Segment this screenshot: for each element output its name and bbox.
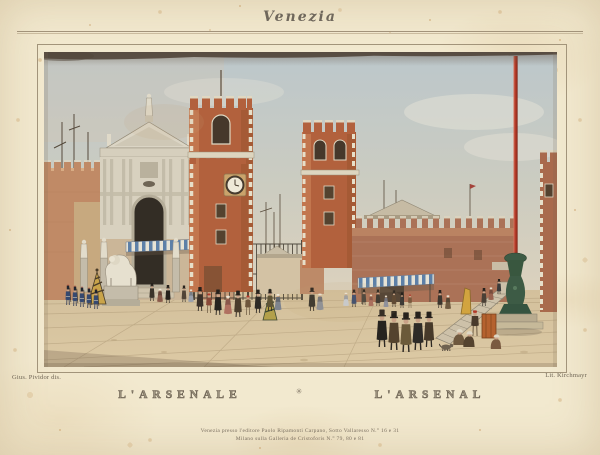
publisher-imprint: Venezia presso l'editore Paolo Ripamonti…: [0, 427, 600, 443]
flagpole: [514, 56, 518, 258]
title-rule: [17, 31, 583, 32]
belfry-window: [212, 115, 230, 144]
title-rule-shadow: [17, 33, 583, 34]
left-tower: [188, 70, 254, 292]
lithographer-credit: Lit. Kirchmayr: [545, 372, 587, 379]
divider-ornament: ✳: [284, 387, 314, 396]
winged-lion-relief: [143, 181, 155, 187]
lithograph-print: [44, 52, 557, 367]
series-title: Venezia: [0, 9, 600, 25]
crate: [482, 314, 496, 338]
publisher-imprint-line2: Milano sulla Galleria de Cristoforis N.°…: [0, 435, 600, 443]
publisher-imprint-line1: Venezia presso l'editore Paolo Ripamonti…: [0, 427, 600, 435]
lithograph-scene: [44, 52, 557, 367]
right-tower: [301, 120, 359, 268]
print-sheet: Venezia: [0, 0, 600, 455]
artist-credit: Gius. Pividor dis.: [12, 374, 61, 381]
caption-french: L'ARSENAL: [330, 389, 530, 401]
caption-italian: L'ARSENALE: [60, 389, 300, 401]
